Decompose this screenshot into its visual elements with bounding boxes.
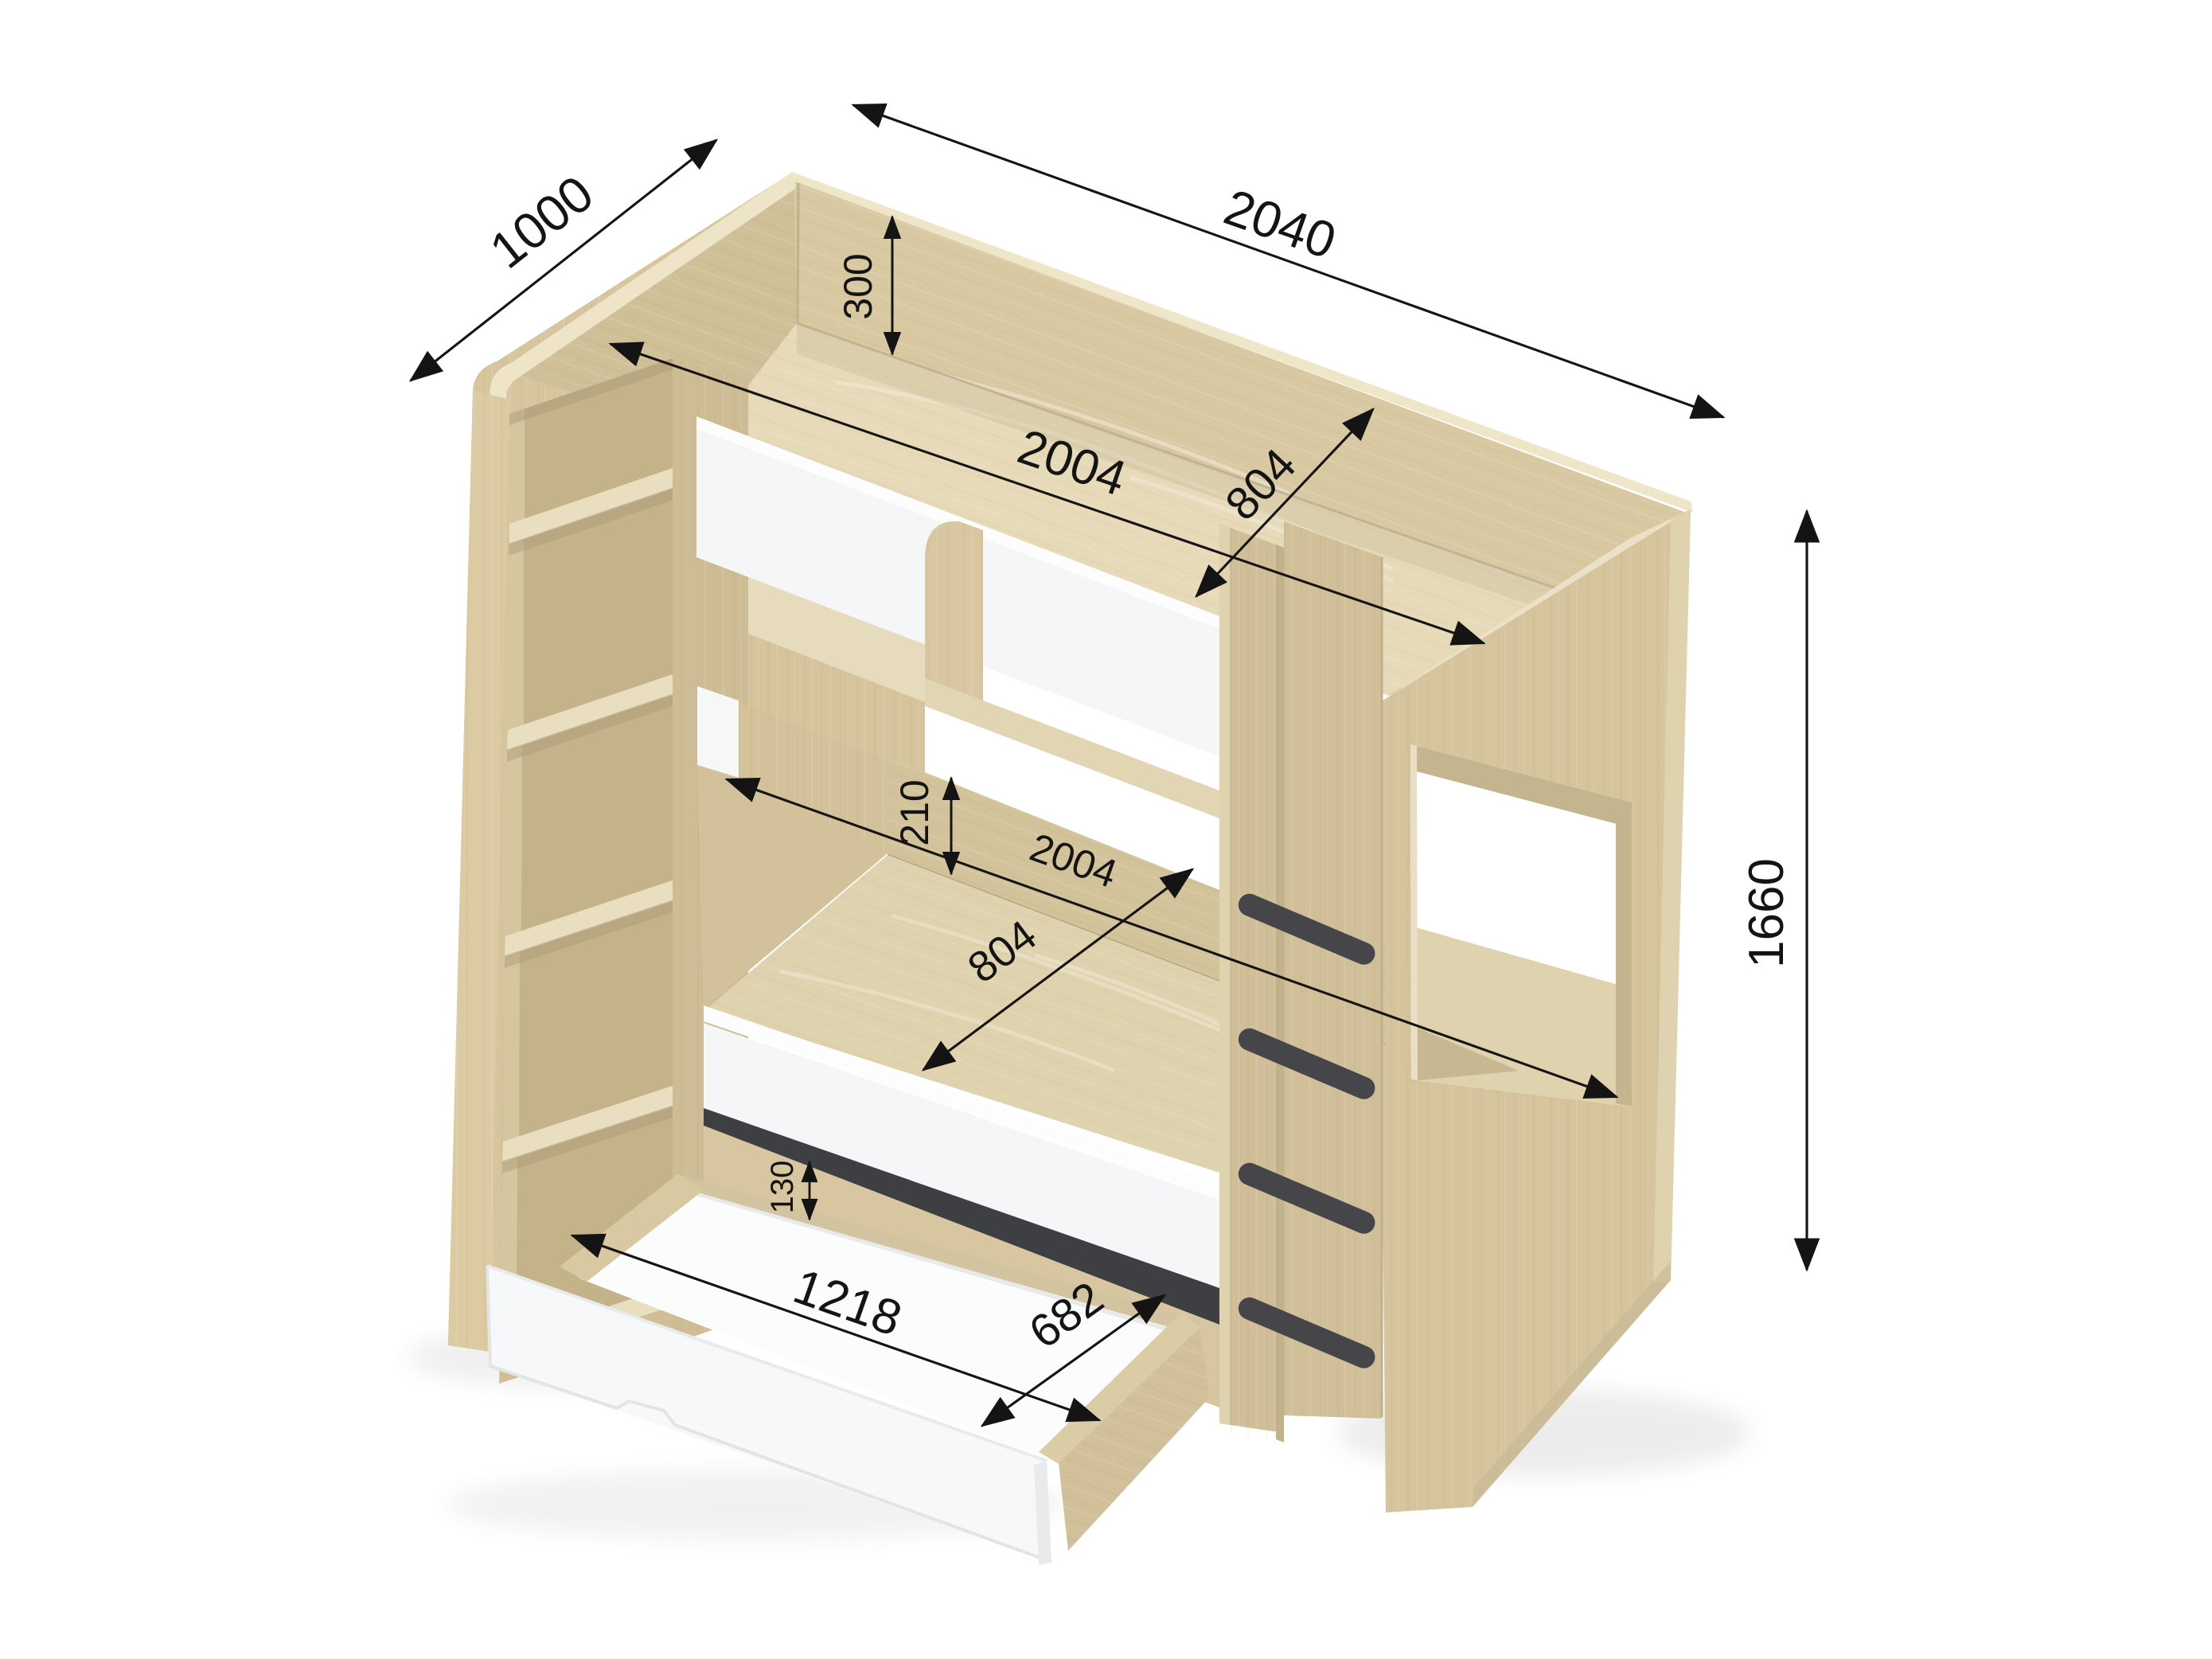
svg-text:130: 130 <box>765 1161 800 1214</box>
svg-text:210: 210 <box>892 779 937 845</box>
svg-text:300: 300 <box>836 253 880 319</box>
svg-text:1660: 1660 <box>1739 858 1794 968</box>
